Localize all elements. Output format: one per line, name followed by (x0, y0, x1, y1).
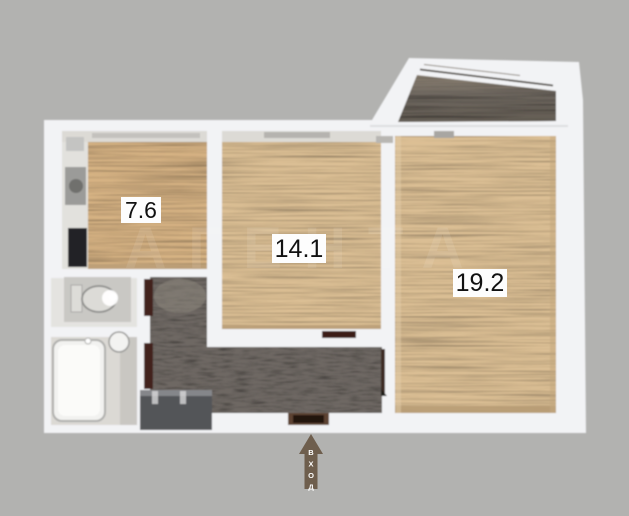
svg-text:Х: Х (308, 460, 313, 469)
svg-text:7.6: 7.6 (125, 197, 157, 223)
svg-text:О: О (308, 471, 314, 480)
svg-text:14.1: 14.1 (275, 235, 324, 263)
svg-text:Д: Д (308, 483, 314, 492)
svg-text:В: В (308, 448, 314, 457)
svg-text:19.2: 19.2 (456, 269, 505, 297)
